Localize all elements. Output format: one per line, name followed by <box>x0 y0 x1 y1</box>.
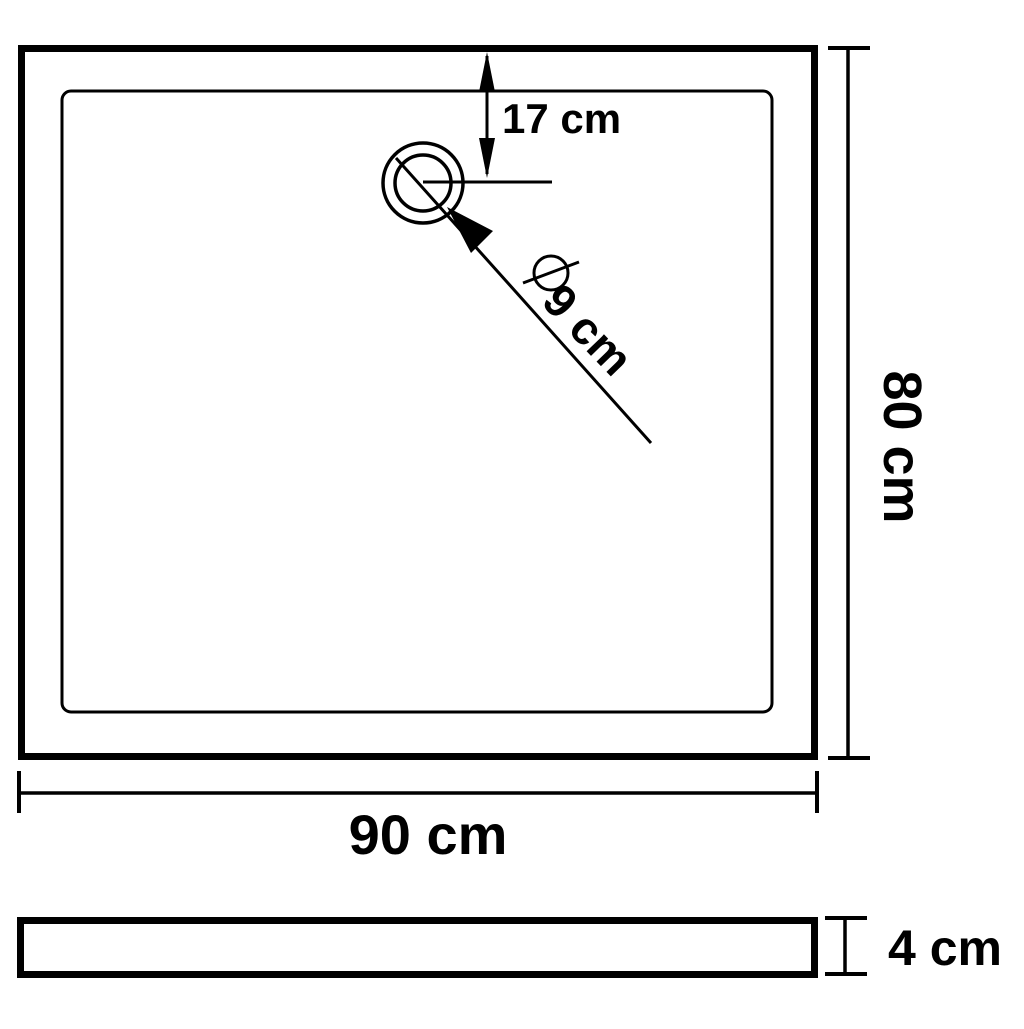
width-label: 90 cm <box>349 803 508 866</box>
depth-label: 80 cm <box>872 370 932 523</box>
side-view-profile <box>21 921 815 975</box>
height-label: 4 cm <box>888 920 1002 976</box>
top-view: 17 cm 9 cm <box>22 49 815 757</box>
depth-dimension: 80 cm <box>828 48 932 758</box>
shower-tray-dimension-diagram: 17 cm 9 cm 80 cm 90 cm <box>0 0 1024 1024</box>
height-dimension: 4 cm <box>825 918 1002 976</box>
drain-offset-label: 17 cm <box>502 95 621 142</box>
side-view: 4 cm <box>21 918 1002 976</box>
diagram-svg: 17 cm 9 cm 80 cm 90 cm <box>0 0 1024 1024</box>
width-dimension: 90 cm <box>18 771 817 866</box>
